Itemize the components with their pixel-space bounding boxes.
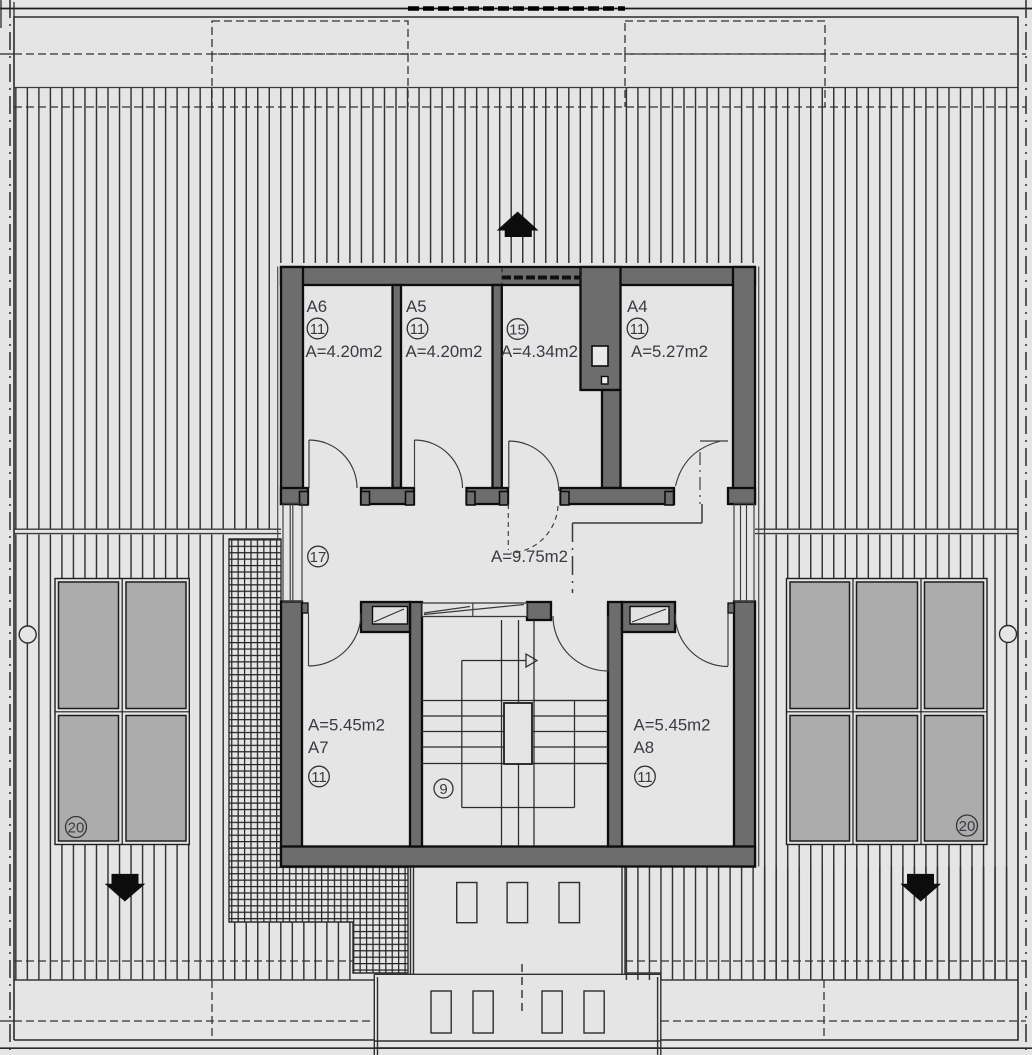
svg-text:A=9.75m2: A=9.75m2 (491, 547, 568, 566)
svg-text:11: 11 (410, 321, 426, 338)
svg-text:A6: A6 (307, 297, 328, 316)
svg-text:A=4.34m2: A=4.34m2 (501, 342, 578, 361)
svg-text:A=4.20m2: A=4.20m2 (406, 342, 483, 361)
svg-text:A7: A7 (308, 738, 329, 757)
svg-text:20: 20 (959, 818, 976, 835)
svg-text:A=5.27m2: A=5.27m2 (631, 342, 708, 361)
svg-text:11: 11 (310, 321, 326, 338)
svg-text:11: 11 (637, 769, 653, 786)
svg-text:A4: A4 (627, 297, 648, 316)
svg-text:A=5.45m2: A=5.45m2 (634, 716, 711, 735)
svg-text:A8: A8 (634, 738, 655, 757)
svg-text:11: 11 (630, 321, 646, 338)
svg-text:11: 11 (311, 769, 327, 786)
svg-text:17: 17 (310, 549, 327, 566)
svg-text:9: 9 (439, 781, 447, 798)
svg-text:A=5.45m2: A=5.45m2 (308, 716, 385, 735)
svg-text:15: 15 (509, 322, 526, 339)
svg-text:A=4.20m2: A=4.20m2 (306, 342, 383, 361)
svg-text:A5: A5 (406, 297, 427, 316)
svg-text:20: 20 (68, 820, 85, 837)
